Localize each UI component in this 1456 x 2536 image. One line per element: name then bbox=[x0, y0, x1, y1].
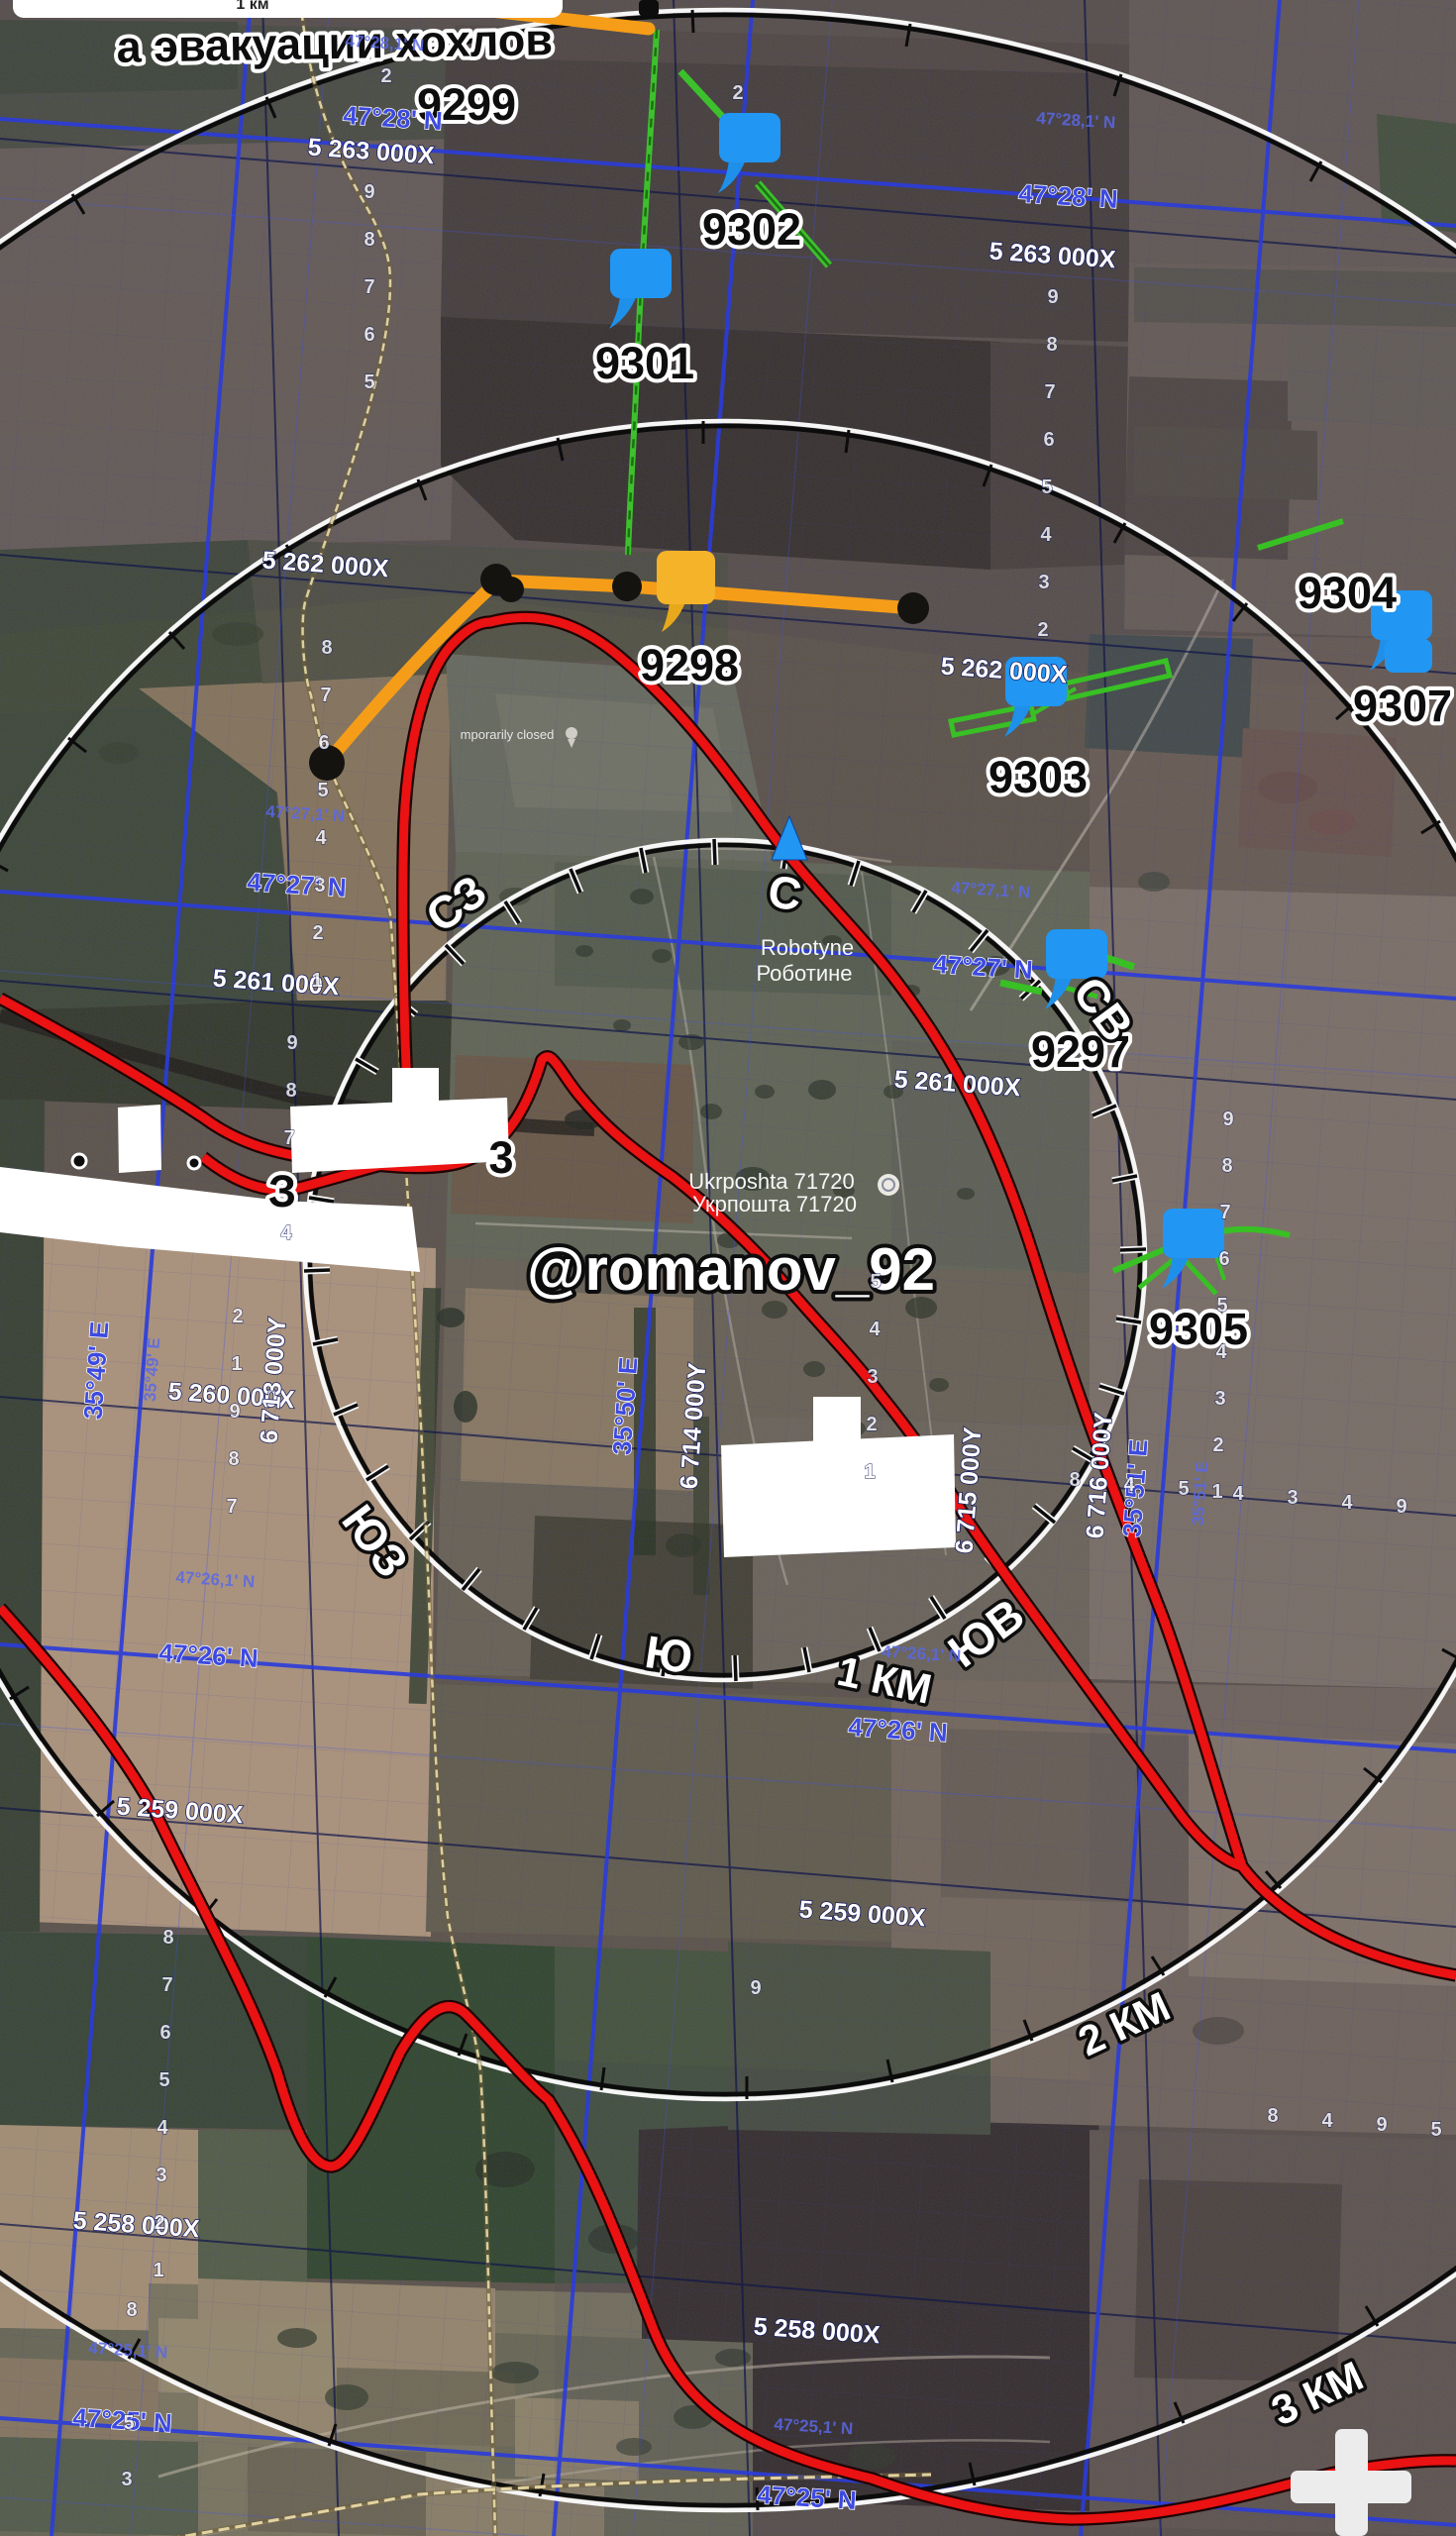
svg-text:1: 1 bbox=[1211, 1481, 1222, 1503]
svg-text:9307: 9307 bbox=[1353, 681, 1452, 731]
svg-text:4: 4 bbox=[1123, 1474, 1135, 1496]
svg-text:47°27' N: 47°27' N bbox=[933, 949, 1034, 985]
svg-text:4: 4 bbox=[1215, 1341, 1227, 1363]
svg-text:3: 3 bbox=[1287, 1487, 1298, 1509]
svg-text:4: 4 bbox=[1321, 2110, 1333, 2132]
svg-text:47°25' N: 47°25' N bbox=[757, 2480, 858, 2515]
svg-text:Роботине: Роботине bbox=[756, 961, 852, 986]
svg-text:5: 5 bbox=[317, 780, 328, 801]
svg-text:9: 9 bbox=[1222, 1109, 1233, 1130]
svg-text:2: 2 bbox=[154, 2212, 164, 2234]
svg-text:9: 9 bbox=[1376, 2114, 1387, 2136]
svg-text:2: 2 bbox=[380, 65, 391, 87]
svg-text:Robotyne: Robotyne bbox=[761, 935, 854, 960]
svg-text:4: 4 bbox=[1232, 1483, 1244, 1505]
svg-text:8: 8 bbox=[1069, 1469, 1080, 1491]
svg-text:1: 1 bbox=[864, 1461, 875, 1483]
svg-text:4: 4 bbox=[1341, 1492, 1353, 1514]
svg-text:3: 3 bbox=[1038, 572, 1049, 593]
svg-text:З: З bbox=[268, 1166, 296, 1216]
svg-text:9298: 9298 bbox=[640, 640, 739, 690]
svg-text:9: 9 bbox=[750, 1977, 761, 1999]
svg-text:Ukrposhta 71720: Ukrposhta 71720 bbox=[688, 1169, 855, 1194]
svg-text:2: 2 bbox=[1212, 1434, 1223, 1456]
svg-text:2: 2 bbox=[866, 1414, 877, 1435]
svg-text:6: 6 bbox=[318, 732, 329, 754]
svg-text:9: 9 bbox=[229, 1401, 240, 1423]
svg-text:3: 3 bbox=[314, 875, 325, 897]
svg-text:9304: 9304 bbox=[1298, 568, 1397, 618]
svg-text:8: 8 bbox=[1267, 2105, 1278, 2127]
svg-text:4: 4 bbox=[280, 1222, 292, 1244]
svg-text:7: 7 bbox=[364, 276, 374, 298]
svg-text:5: 5 bbox=[870, 1271, 881, 1293]
svg-text:8: 8 bbox=[321, 637, 332, 659]
svg-text:9: 9 bbox=[286, 1032, 297, 1054]
svg-text:3: 3 bbox=[1214, 1388, 1225, 1410]
svg-text:7: 7 bbox=[1219, 1202, 1230, 1223]
svg-text:5: 5 bbox=[1041, 476, 1052, 498]
svg-text:mporarily closed: mporarily closed bbox=[461, 727, 555, 742]
svg-text:7: 7 bbox=[320, 685, 331, 706]
svg-text:47°27' N: 47°27' N bbox=[247, 867, 348, 902]
svg-text:8: 8 bbox=[1221, 1155, 1232, 1177]
svg-text:8: 8 bbox=[364, 229, 374, 251]
svg-text:4: 4 bbox=[156, 2117, 168, 2139]
svg-text:Ю: Ю bbox=[642, 1626, 696, 1683]
svg-text:6: 6 bbox=[1043, 429, 1054, 451]
svg-text:5: 5 bbox=[158, 2069, 169, 2091]
svg-text:6: 6 bbox=[159, 2022, 170, 2044]
svg-text:8: 8 bbox=[285, 1080, 296, 1102]
svg-text:4: 4 bbox=[1040, 524, 1052, 546]
svg-text:47°28' N: 47°28' N bbox=[343, 100, 444, 136]
svg-text:Укрпошта 71720: Укрпошта 71720 bbox=[692, 1192, 857, 1216]
svg-text:9: 9 bbox=[364, 181, 374, 203]
svg-text:7: 7 bbox=[226, 1496, 237, 1518]
svg-text:5: 5 bbox=[123, 2412, 134, 2434]
svg-text:1: 1 bbox=[311, 970, 322, 992]
svg-text:8: 8 bbox=[228, 1448, 239, 1470]
svg-text:1: 1 bbox=[231, 1353, 242, 1375]
svg-text:9305: 9305 bbox=[1149, 1304, 1248, 1354]
svg-text:4: 4 bbox=[315, 827, 327, 849]
svg-text:9302: 9302 bbox=[702, 204, 801, 255]
svg-text:5: 5 bbox=[1178, 1478, 1189, 1500]
svg-text:9301: 9301 bbox=[595, 338, 694, 388]
svg-text:9: 9 bbox=[1047, 286, 1058, 308]
svg-text:2: 2 bbox=[232, 1306, 243, 1327]
svg-text:3: 3 bbox=[488, 1132, 513, 1183]
svg-text:2: 2 bbox=[732, 82, 743, 104]
svg-text:8: 8 bbox=[162, 1927, 173, 1949]
svg-text:7: 7 bbox=[1044, 381, 1055, 403]
svg-text:1: 1 bbox=[153, 2260, 163, 2281]
svg-text:2: 2 bbox=[312, 922, 323, 944]
svg-text:3: 3 bbox=[156, 2165, 166, 2186]
svg-text:47°28' N: 47°28' N bbox=[1018, 178, 1119, 214]
svg-text:47°26' N: 47°26' N bbox=[848, 1712, 949, 1747]
svg-text:3: 3 bbox=[121, 2469, 132, 2490]
svg-text:7: 7 bbox=[283, 1127, 294, 1149]
svg-text:6: 6 bbox=[364, 324, 374, 346]
svg-text:6: 6 bbox=[1218, 1248, 1229, 1270]
svg-text:9: 9 bbox=[1396, 1496, 1406, 1518]
svg-text:8: 8 bbox=[1046, 334, 1057, 356]
svg-text:8: 8 bbox=[126, 2299, 137, 2321]
svg-text:7: 7 bbox=[161, 1974, 172, 1996]
svg-text:а эвакуации хохлов: а эвакуации хохлов bbox=[116, 14, 553, 72]
svg-text:4: 4 bbox=[869, 1319, 881, 1340]
svg-text:5: 5 bbox=[1430, 2119, 1441, 2141]
svg-text:5: 5 bbox=[364, 371, 374, 393]
svg-text:5: 5 bbox=[1216, 1295, 1227, 1317]
svg-text:47°26' N: 47°26' N bbox=[158, 1638, 260, 1673]
svg-text:9303: 9303 bbox=[988, 752, 1088, 802]
svg-text:1 км: 1 км bbox=[236, 0, 268, 13]
svg-text:3: 3 bbox=[867, 1366, 878, 1388]
svg-text:2: 2 bbox=[1037, 619, 1048, 641]
